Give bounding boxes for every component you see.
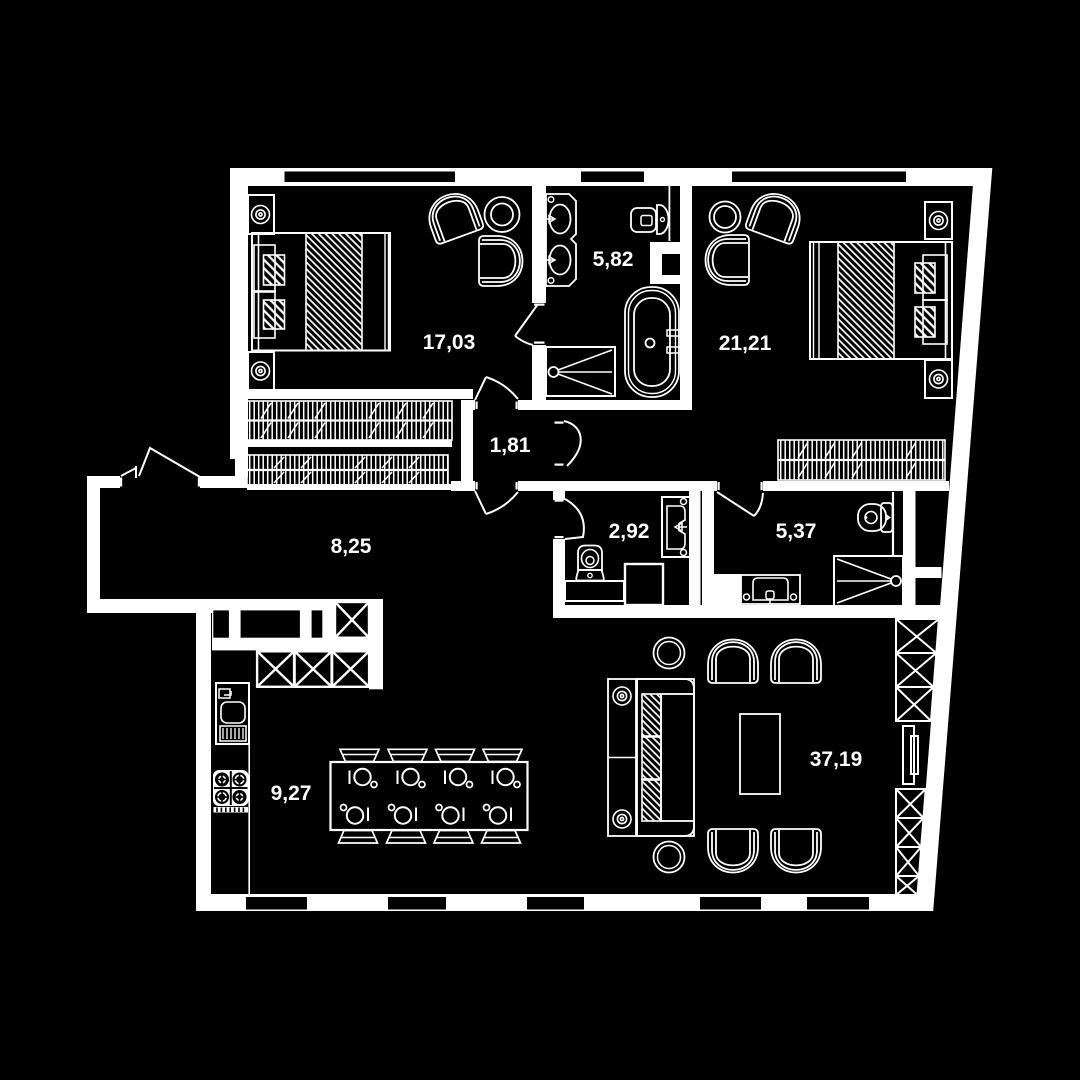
svg-text:8,25: 8,25 <box>331 535 372 558</box>
svg-text:37,19: 37,19 <box>810 748 863 771</box>
svg-text:5,82: 5,82 <box>593 248 634 271</box>
svg-text:2,92: 2,92 <box>609 520 650 543</box>
svg-text:21,21: 21,21 <box>719 332 772 355</box>
svg-text:1,81: 1,81 <box>490 434 531 457</box>
svg-text:17,03: 17,03 <box>423 331 476 354</box>
svg-text:5,37: 5,37 <box>776 520 817 543</box>
svg-text:9,27: 9,27 <box>271 782 312 805</box>
